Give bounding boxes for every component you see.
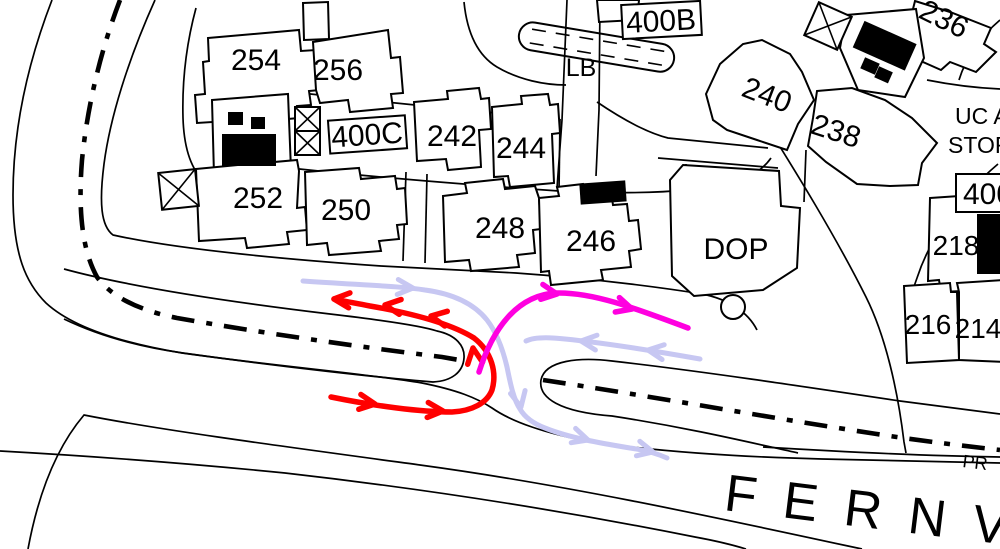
xbox-stack-icon	[295, 107, 320, 155]
courtyard-line-c	[804, 150, 806, 202]
building-254-label: 254	[231, 44, 281, 77]
building-252-label: 252	[233, 182, 283, 215]
route-red-arrowhead-icon	[431, 311, 447, 326]
lb-label: LB	[566, 54, 597, 82]
pr-label: PR	[962, 451, 989, 474]
route-red-u-turn	[331, 293, 494, 418]
xbox-left-icon	[158, 169, 199, 210]
building-400b-label: 400B	[625, 3, 697, 40]
route-lavender-westbound-path	[526, 338, 700, 359]
fernwood-lower-parallel-edge	[0, 451, 746, 549]
building-248-label: 248	[475, 212, 525, 245]
building-256-label: 256	[313, 54, 363, 87]
building-dop	[670, 165, 800, 296]
building-242-label: 242	[427, 120, 477, 153]
label-box-400b: 400B	[621, 1, 702, 40]
uc-storage-label-line1: UC AT	[955, 103, 1000, 129]
black-roof-254	[222, 134, 276, 166]
walkway-250-248-b	[425, 174, 427, 263]
building-246-label: 246	[566, 225, 616, 258]
dop-circle-bump	[721, 295, 745, 319]
black-vent-254-b	[251, 117, 265, 129]
building-400c-label: 400C	[330, 117, 404, 155]
route-red-arrowhead-icon	[385, 300, 401, 315]
building-400-label: 400	[963, 178, 1000, 211]
building-218-label: 218	[933, 230, 980, 261]
dop-label: DOP	[703, 233, 768, 266]
median-island-east	[541, 359, 1000, 453]
path-ne-of-256	[464, 2, 566, 85]
street-name-label: FERNV	[722, 464, 1000, 549]
building-214-label: 214	[955, 313, 1000, 344]
black-roof-218	[977, 214, 1000, 274]
black-vent-254-a	[228, 112, 243, 125]
label-box-400c: 400C	[328, 115, 407, 154]
lb-walkway-right	[596, 0, 600, 176]
road-edges	[0, 0, 1000, 549]
road-inner-north-edge	[101, 0, 757, 330]
route-lavender-through-path	[303, 281, 667, 458]
building-244-label: 244	[496, 132, 546, 165]
uc-storage-label-line2: STOR	[948, 132, 1000, 158]
route-lavender-arrowhead-icon	[511, 391, 526, 408]
building-216-label: 216	[905, 309, 952, 340]
centerline-east	[543, 380, 1000, 450]
line-under-236	[927, 80, 1000, 89]
building-250-label: 250	[321, 194, 371, 227]
label-box-400: 400	[956, 174, 1000, 212]
black-roof-246	[579, 180, 626, 204]
building-top-small	[303, 2, 329, 40]
campus-site-map: 400C 400B 400 254 256 242 244 252 250 24…	[0, 0, 1000, 549]
